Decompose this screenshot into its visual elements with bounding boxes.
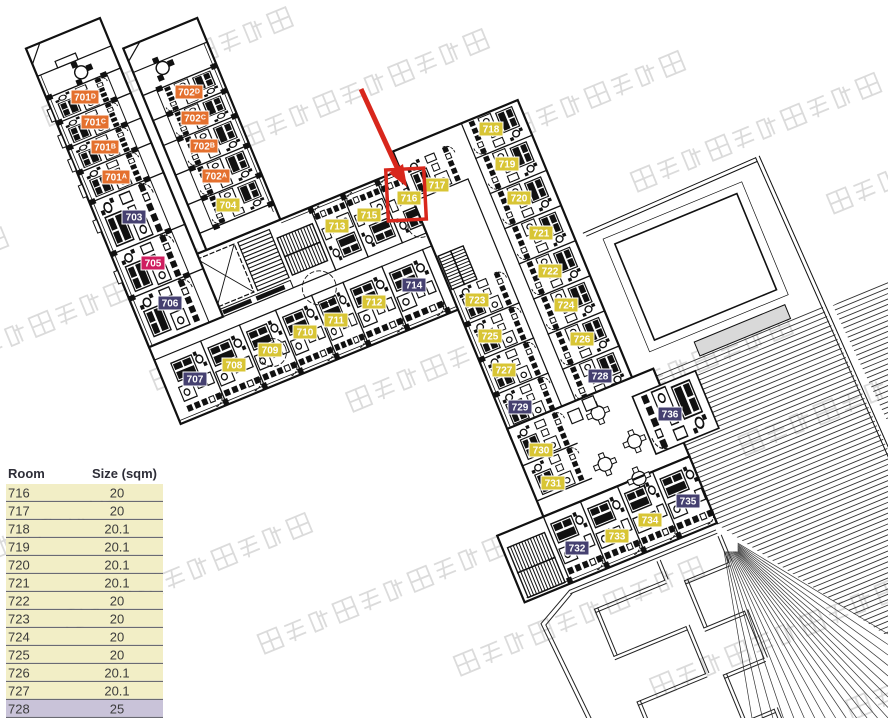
svg-text:709: 709 — [262, 346, 279, 357]
svg-text:736: 736 — [662, 410, 679, 421]
svg-text:718: 718 — [8, 522, 30, 537]
svg-text:20: 20 — [110, 612, 124, 627]
svg-text:728: 728 — [8, 702, 30, 717]
svg-text:731: 731 — [545, 479, 562, 490]
svg-text:727: 727 — [8, 684, 30, 699]
svg-text:732: 732 — [569, 544, 586, 555]
svg-text:20: 20 — [110, 630, 124, 645]
svg-text:735: 735 — [680, 497, 697, 508]
svg-text:719: 719 — [499, 160, 516, 171]
svg-text:714: 714 — [406, 281, 423, 292]
svg-text:706: 706 — [162, 299, 179, 310]
svg-text:723: 723 — [469, 296, 486, 307]
svg-text:724: 724 — [8, 630, 30, 645]
svg-text:20.1: 20.1 — [104, 684, 129, 699]
svg-text:724: 724 — [558, 301, 575, 312]
svg-text:720: 720 — [8, 558, 30, 573]
svg-text:733: 733 — [609, 532, 626, 543]
svg-text:718: 718 — [483, 125, 500, 136]
svg-text:729: 729 — [512, 403, 529, 414]
svg-text:710: 710 — [297, 328, 314, 339]
svg-text:721: 721 — [533, 229, 550, 240]
svg-text:20: 20 — [110, 486, 124, 501]
svg-text:Room: Room — [8, 466, 45, 481]
svg-text:716: 716 — [401, 194, 418, 205]
svg-text:734: 734 — [642, 516, 659, 527]
svg-text:725: 725 — [8, 648, 30, 663]
svg-text:717: 717 — [429, 181, 446, 192]
svg-text:719: 719 — [8, 540, 30, 555]
svg-text:Size (sqm): Size (sqm) — [92, 466, 157, 481]
svg-text:20: 20 — [110, 648, 124, 663]
svg-text:712: 712 — [366, 298, 383, 309]
svg-text:721: 721 — [8, 576, 30, 591]
svg-text:726: 726 — [574, 335, 591, 346]
svg-text:730: 730 — [533, 446, 550, 457]
svg-text:25: 25 — [110, 702, 124, 717]
svg-text:722: 722 — [8, 594, 30, 609]
svg-text:726: 726 — [8, 666, 30, 681]
svg-text:707: 707 — [187, 375, 204, 386]
svg-text:703: 703 — [126, 213, 143, 224]
svg-text:705: 705 — [145, 259, 162, 270]
svg-text:725: 725 — [482, 332, 499, 343]
svg-text:715: 715 — [361, 211, 378, 222]
svg-text:722: 722 — [542, 267, 559, 278]
svg-text:728: 728 — [592, 372, 609, 383]
svg-text:20.1: 20.1 — [104, 540, 129, 555]
svg-text:20.1: 20.1 — [104, 666, 129, 681]
svg-text:711: 711 — [328, 316, 345, 327]
svg-text:720: 720 — [511, 194, 528, 205]
svg-text:717: 717 — [8, 504, 30, 519]
svg-text:716: 716 — [8, 486, 30, 501]
svg-text:713: 713 — [329, 222, 346, 233]
svg-text:20.1: 20.1 — [104, 576, 129, 591]
svg-text:20.1: 20.1 — [104, 522, 129, 537]
svg-text:708: 708 — [226, 361, 243, 372]
svg-text:723: 723 — [8, 612, 30, 627]
svg-text:704: 704 — [220, 201, 237, 212]
svg-text:20: 20 — [110, 594, 124, 609]
svg-text:727: 727 — [496, 366, 513, 377]
svg-text:20.1: 20.1 — [104, 558, 129, 573]
svg-text:20: 20 — [110, 504, 124, 519]
